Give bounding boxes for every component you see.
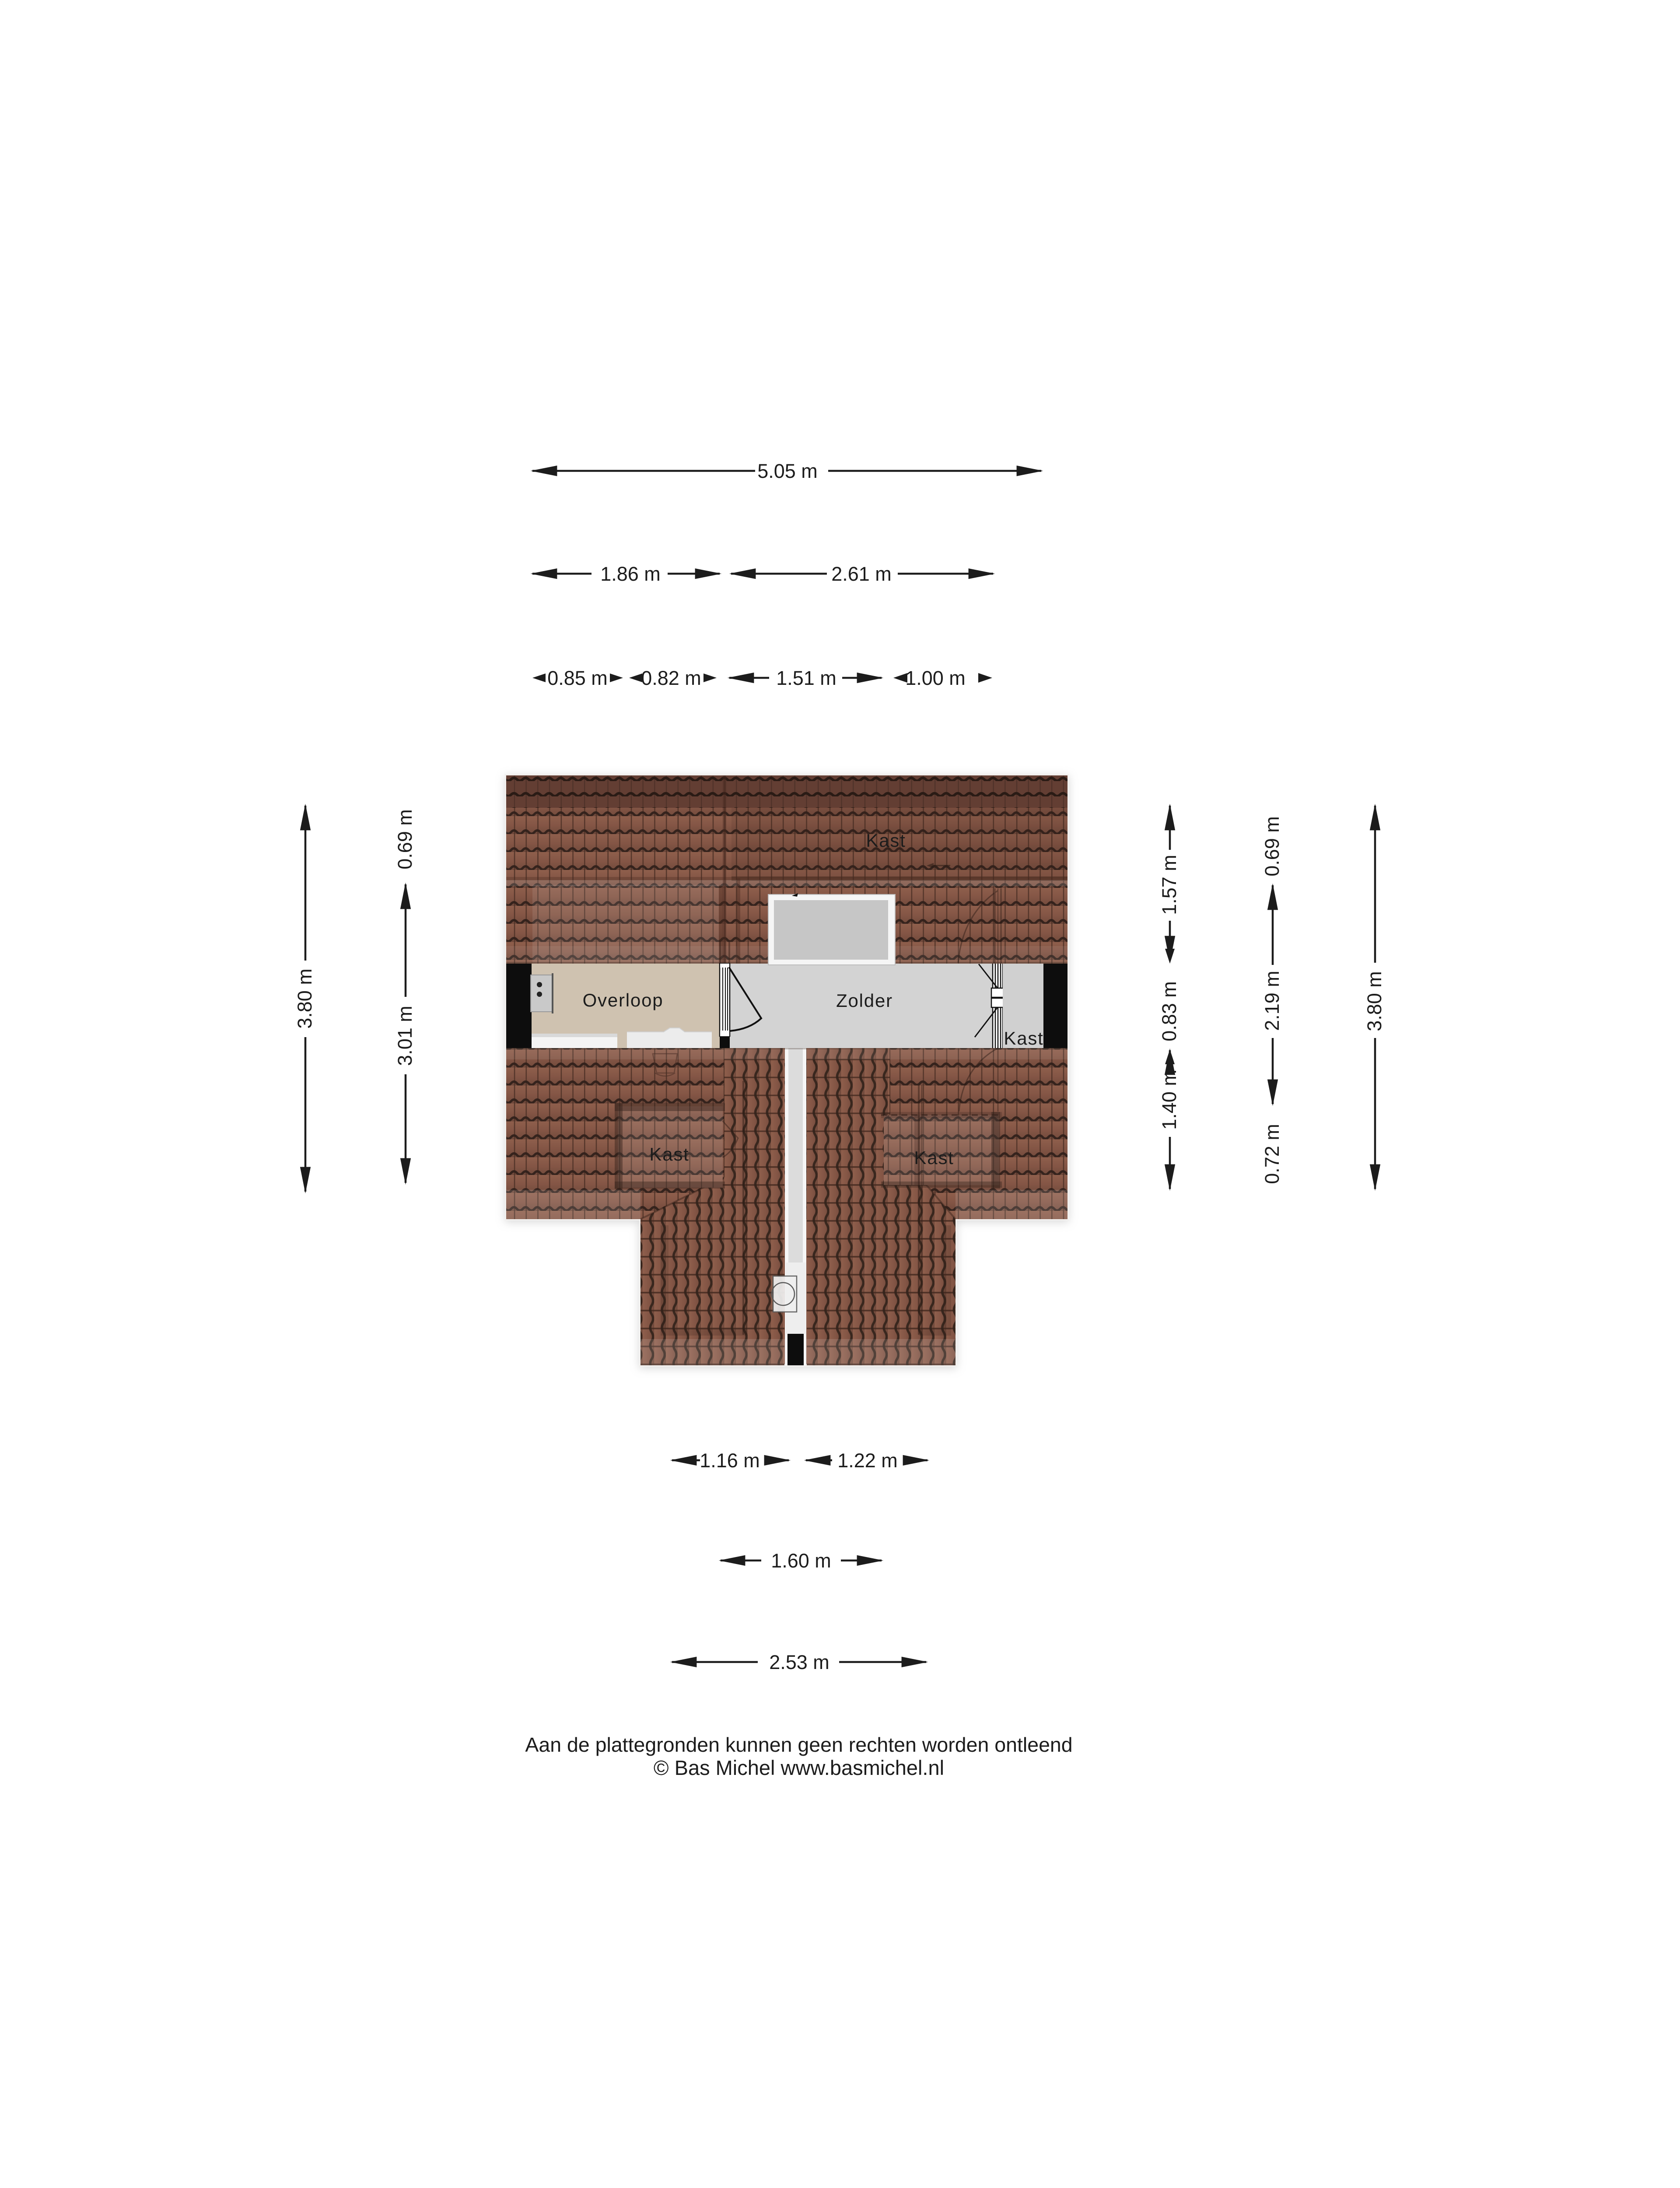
svg-text:1.60 m: 1.60 m	[771, 1550, 831, 1572]
svg-text:1.51 m: 1.51 m	[776, 667, 836, 689]
svg-text:1.57 m: 1.57 m	[1158, 855, 1180, 915]
svg-text:0.69 m: 0.69 m	[1261, 816, 1283, 877]
svg-text:3.01 m: 3.01 m	[394, 1006, 416, 1066]
svg-text:1.22 m: 1.22 m	[837, 1449, 898, 1472]
svg-text:0.85 m: 0.85 m	[547, 667, 608, 689]
svg-text:Zolder: Zolder	[836, 990, 893, 1011]
svg-text:0.82 m: 0.82 m	[641, 667, 701, 689]
svg-text:0.72 m: 0.72 m	[1261, 1124, 1283, 1184]
svg-text:Overloop: Overloop	[583, 990, 664, 1010]
svg-text:Kast: Kast	[649, 1144, 689, 1164]
svg-text:1.86 m: 1.86 m	[600, 563, 661, 585]
svg-text:1.00 m: 1.00 m	[905, 667, 966, 689]
svg-text:2.53 m: 2.53 m	[769, 1651, 829, 1673]
svg-text:5.05 m: 5.05 m	[757, 460, 818, 482]
svg-text:3.80 m: 3.80 m	[294, 968, 316, 1029]
svg-text:© Bas Michel www.basmichel.nl: © Bas Michel www.basmichel.nl	[654, 1756, 944, 1779]
svg-text:Kast: Kast	[914, 1147, 954, 1168]
svg-text:0.69 m: 0.69 m	[394, 809, 416, 870]
svg-text:Aan de plattegronden kunnen ge: Aan de plattegronden kunnen geen rechten…	[525, 1733, 1072, 1756]
svg-text:2.19 m: 2.19 m	[1261, 971, 1283, 1031]
svg-text:2.61 m: 2.61 m	[831, 563, 892, 585]
svg-text:1.40 m: 1.40 m	[1158, 1069, 1180, 1130]
svg-text:Kast: Kast	[1004, 1028, 1043, 1048]
svg-text:Kast: Kast	[866, 830, 906, 851]
svg-text:0.83 m: 0.83 m	[1158, 981, 1180, 1041]
svg-text:3.80 m: 3.80 m	[1363, 971, 1386, 1031]
svg-text:1.16 m: 1.16 m	[700, 1449, 760, 1472]
